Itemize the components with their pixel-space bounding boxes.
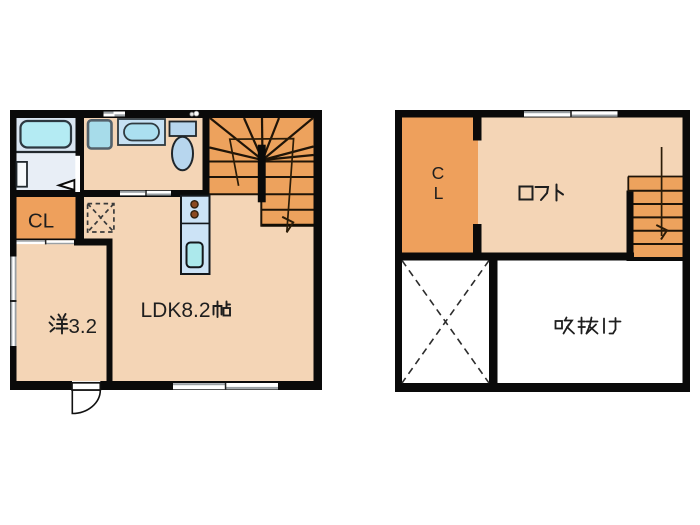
svg-text:CL: CL [28, 210, 54, 233]
svg-text:3.2: 3.2 [69, 315, 98, 338]
svg-text:L: L [434, 183, 444, 203]
svg-text:LDK8.2: LDK8.2 [141, 299, 211, 322]
svg-text:C: C [432, 163, 445, 183]
